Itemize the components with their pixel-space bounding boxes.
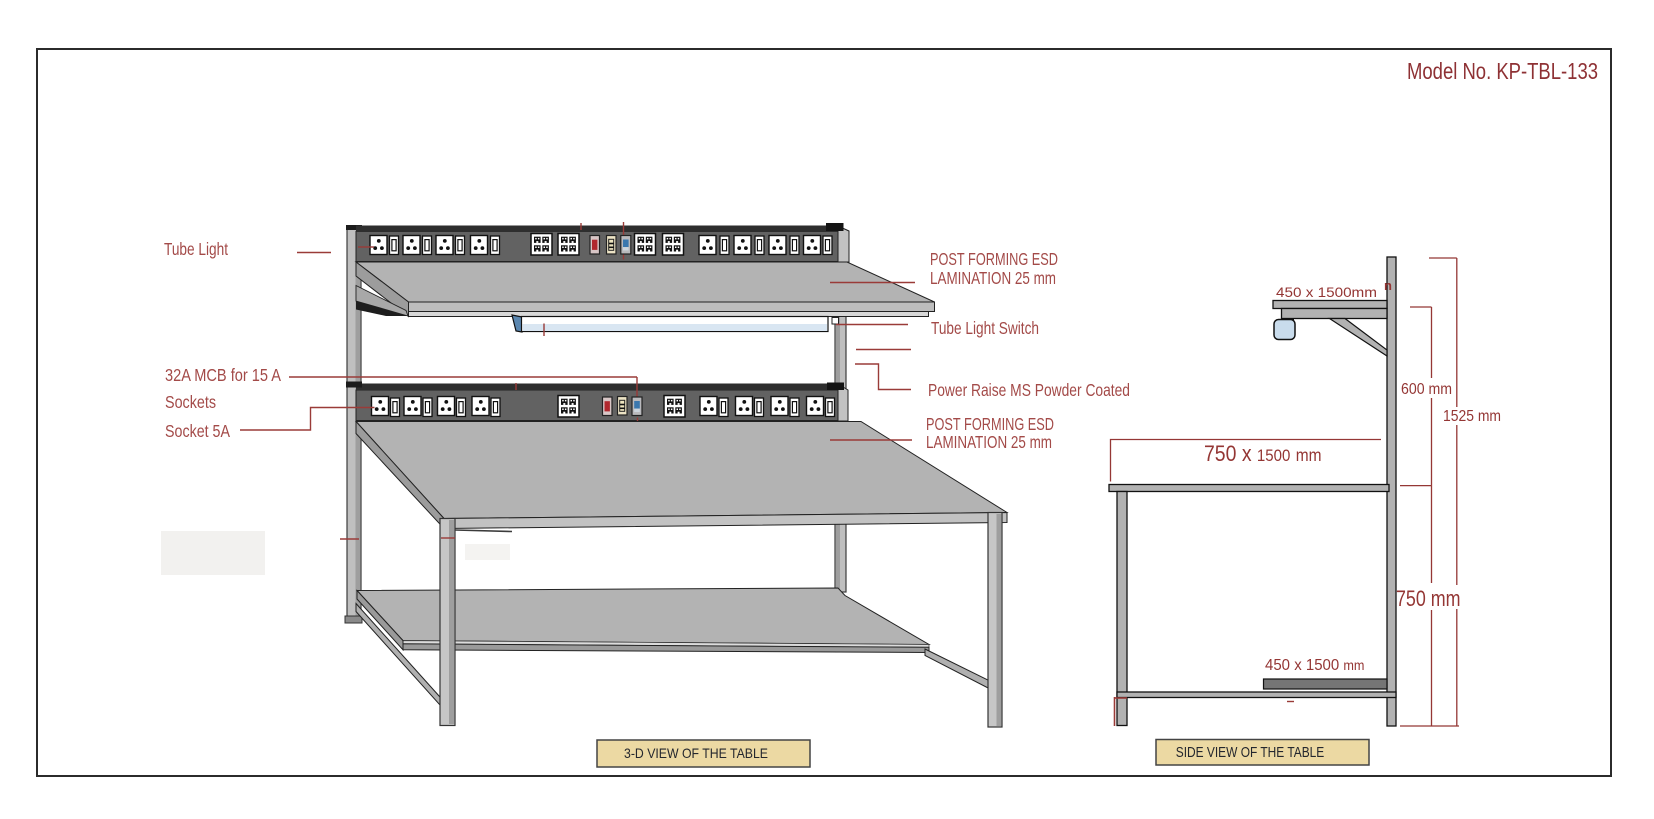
svg-text:Socket 5A: Socket 5A <box>165 421 230 441</box>
svg-text:LAMINATION 25 mm: LAMINATION 25 mm <box>930 268 1056 288</box>
svg-text:750 x 1500 mm: 750 x 1500 mm <box>1204 441 1322 466</box>
svg-text:Tube Light Switch: Tube Light Switch <box>931 318 1039 338</box>
svg-text:3-D VIEW OF THE TABLE: 3-D VIEW OF THE TABLE <box>624 745 768 761</box>
svg-text:1525 mm: 1525 mm <box>1443 408 1501 425</box>
svg-text:n: n <box>1384 278 1392 293</box>
svg-text:Sockets: Sockets <box>165 392 216 412</box>
svg-text:LAMINATION 25 mm: LAMINATION 25 mm <box>926 432 1052 452</box>
svg-text:Tube Light: Tube Light <box>164 239 228 259</box>
svg-text:750 mm: 750 mm <box>1396 586 1461 611</box>
svg-text:32A MCB for 15 A: 32A MCB for 15 A <box>165 365 281 385</box>
svg-text:450 x 1500mm: 450 x 1500mm <box>1276 284 1377 300</box>
svg-text:SIDE VIEW OF THE TABLE: SIDE VIEW OF THE TABLE <box>1176 745 1325 761</box>
svg-text:Model No. KP-TBL-133: Model No. KP-TBL-133 <box>1407 58 1598 84</box>
svg-text:Power Raise MS Powder Coated: Power Raise MS Powder Coated <box>928 380 1130 400</box>
svg-text:POST FORMING ESD: POST FORMING ESD <box>926 414 1054 434</box>
svg-text:POST FORMING ESD: POST FORMING ESD <box>930 249 1058 269</box>
svg-text:600 mm: 600 mm <box>1401 381 1452 398</box>
svg-text:450 x 1500 mm: 450 x 1500 mm <box>1265 657 1365 674</box>
